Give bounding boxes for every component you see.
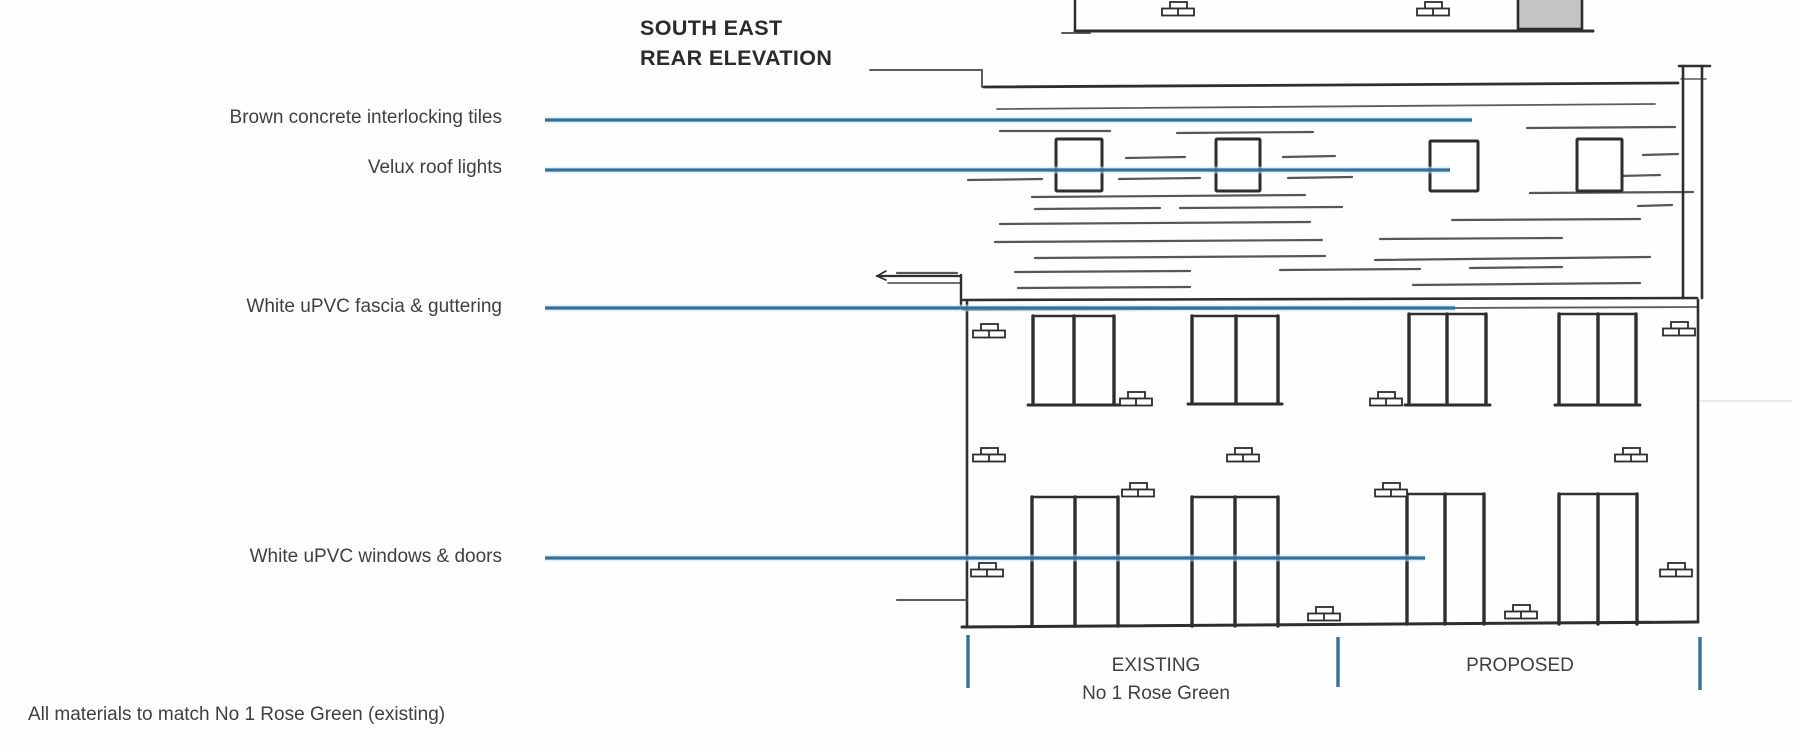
velux-rooflight: [1577, 139, 1622, 191]
annotation-velux: Velux roof lights: [0, 156, 502, 180]
velux-rooflight: [1056, 139, 1102, 191]
velux-rooflights: [1056, 139, 1622, 191]
door-window: [1559, 494, 1637, 624]
zone-existing-line2: No 1 Rose Green: [1006, 680, 1306, 708]
velux-rooflight: [1216, 139, 1260, 191]
gutter-step: [877, 271, 961, 305]
roof-tile-lines: [897, 127, 1693, 288]
shaded-block: [1518, 0, 1582, 29]
window: [1555, 314, 1640, 405]
zone-existing: EXISTING No 1 Rose Green: [1006, 652, 1306, 708]
drawing-title: SOUTH EAST REAR ELEVATION: [640, 13, 832, 73]
zone-existing-line1: EXISTING: [1006, 652, 1306, 680]
materials-note: All materials to match No 1 Rose Green (…: [28, 704, 445, 726]
title-leader-line: [870, 70, 982, 87]
fascia-line: [963, 298, 1697, 300]
zone-proposed: PROPOSED: [1370, 652, 1670, 680]
annotation-tiles: Brown concrete interlocking tiles: [0, 106, 502, 130]
drawing-title-line2: REAR ELEVATION: [640, 43, 832, 73]
upper-elevation-fragment: [1062, 0, 1593, 33]
ground-line: [962, 622, 1698, 627]
air-brick-vents: [971, 322, 1695, 621]
chimney: [1679, 66, 1710, 298]
velux-rooflight: [1430, 141, 1478, 191]
drawing-title-line1: SOUTH EAST: [640, 13, 832, 43]
window: [1028, 316, 1120, 405]
roof: [897, 83, 1693, 288]
annotation-fascia: White uPVC fascia & guttering: [0, 295, 502, 319]
window: [1405, 314, 1490, 405]
elevation-drawing-page: SOUTH EAST REAR ELEVATION Brown concrete…: [0, 0, 1800, 752]
leader-lines: [545, 120, 1472, 558]
annotation-windows: White uPVC windows & doors: [0, 545, 502, 569]
window: [1188, 316, 1282, 404]
upper-windows: [1028, 314, 1640, 405]
